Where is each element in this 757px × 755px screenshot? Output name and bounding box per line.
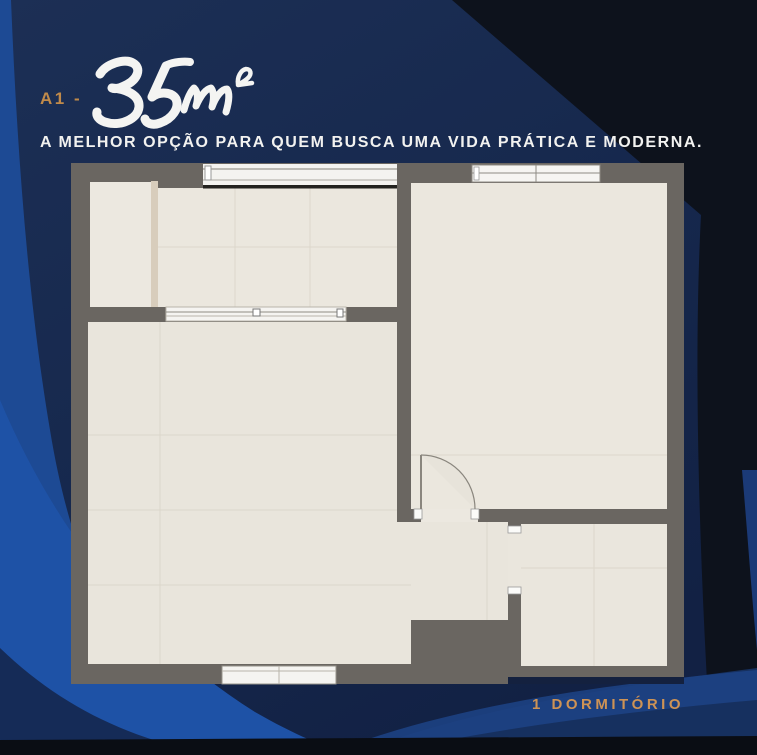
svg-text:1 DORMITÓRIO: 1 DORMITÓRIO [532, 695, 684, 713]
svg-text:A MELHOR OPÇÃO PARA QUEM BUSCA: A MELHOR OPÇÃO PARA QUEM BUSCA UMA VIDA … [40, 131, 703, 151]
svg-text:A1 -: A1 - [40, 89, 82, 108]
